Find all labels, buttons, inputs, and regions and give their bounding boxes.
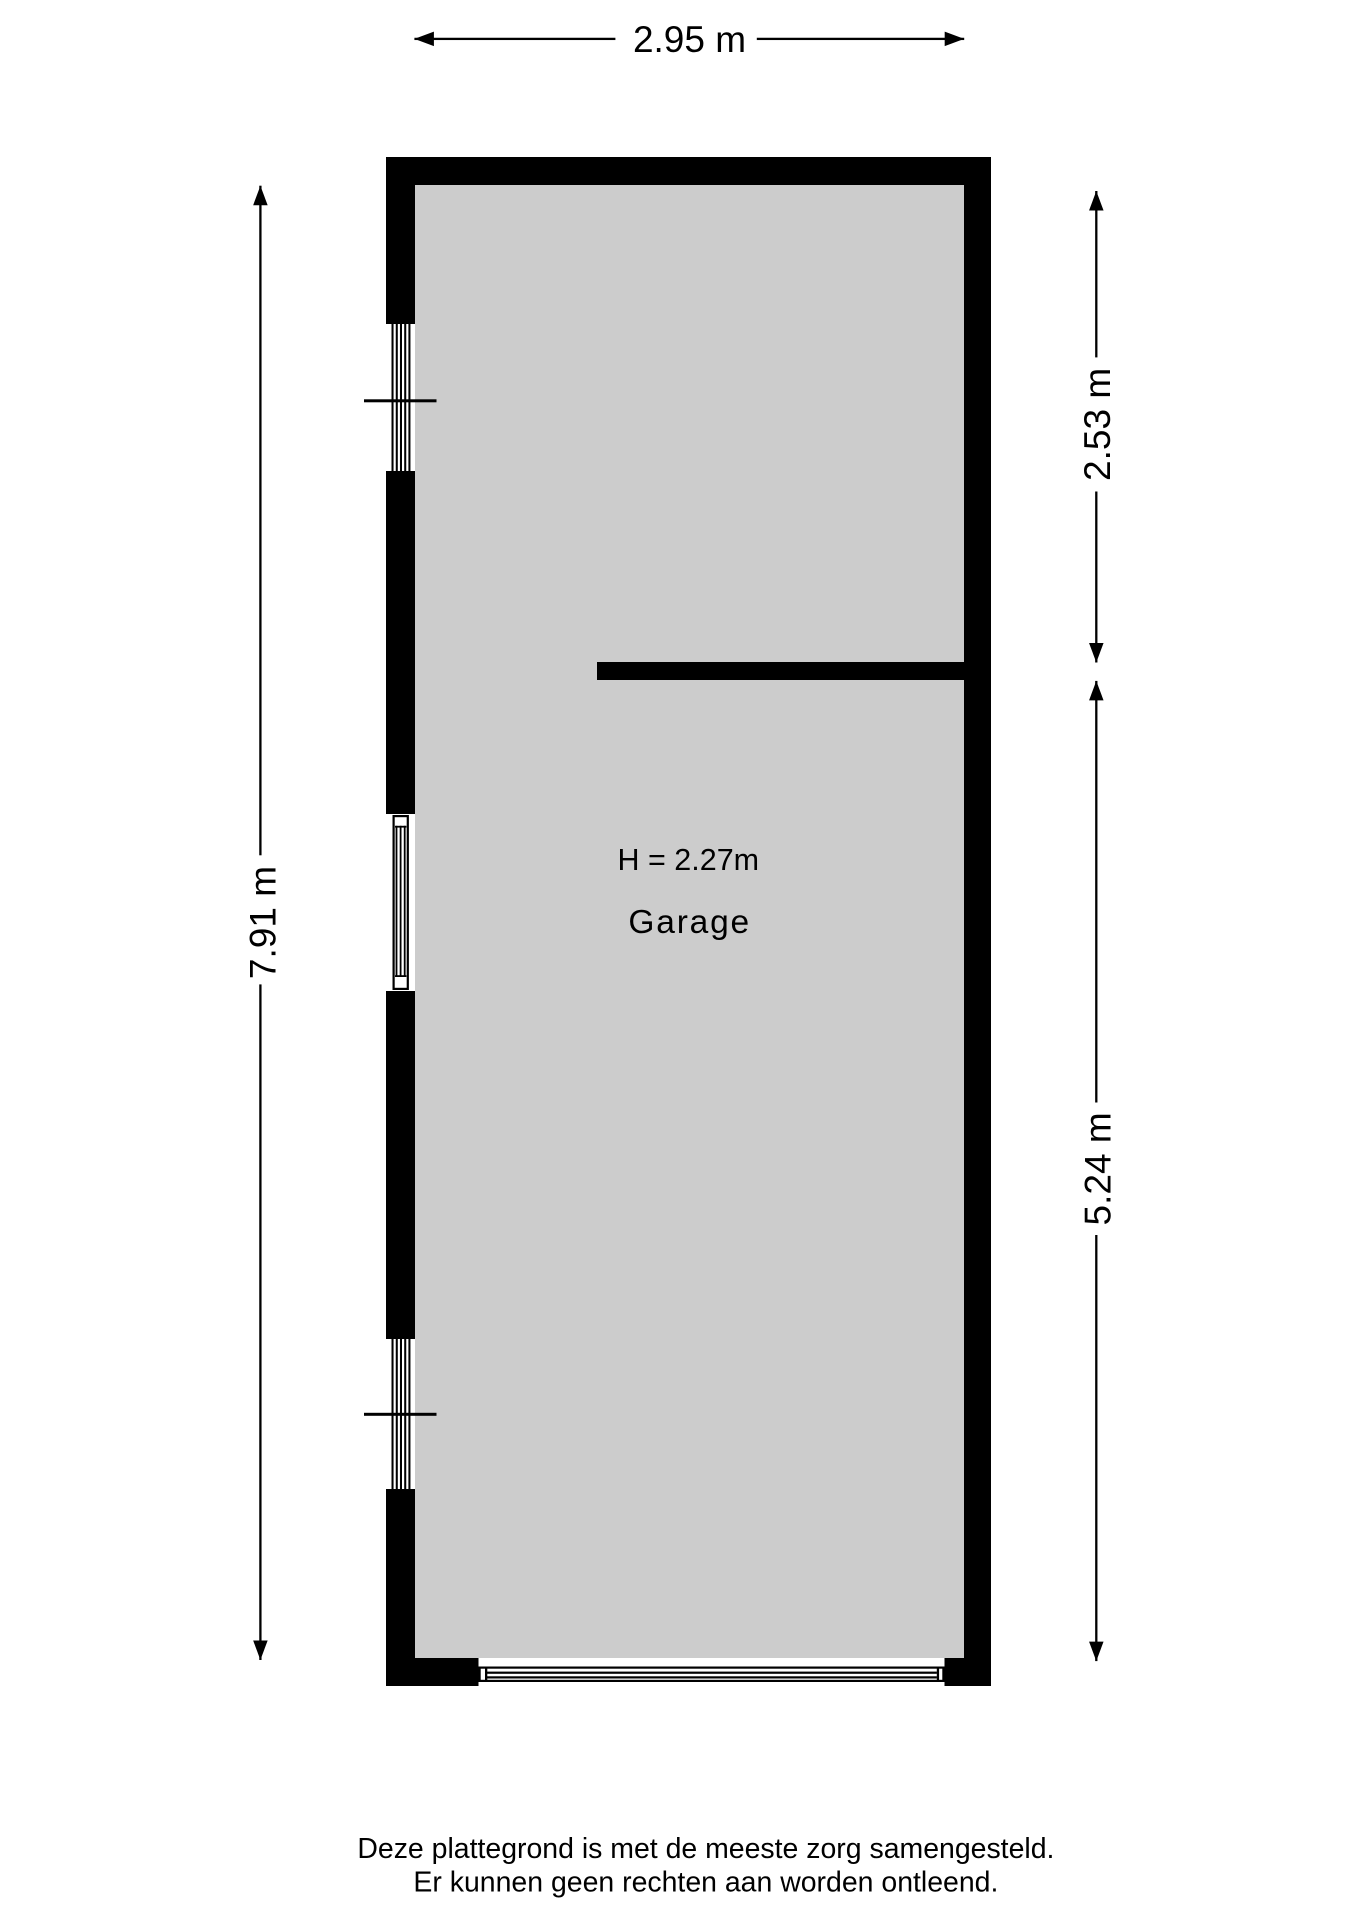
- svg-text:2.95 m: 2.95 m: [633, 19, 746, 60]
- svg-text:Garage: Garage: [628, 904, 751, 941]
- svg-text:2.53 m: 2.53 m: [1077, 368, 1118, 481]
- svg-text:Er kunnen geen rechten aan wor: Er kunnen geen rechten aan worden ontlee…: [413, 1866, 998, 1898]
- svg-text:5.24 m: 5.24 m: [1078, 1112, 1119, 1225]
- svg-text:Deze plattegrond is met de mee: Deze plattegrond is met de meeste zorg s…: [357, 1833, 1054, 1865]
- svg-text:H = 2.27m: H = 2.27m: [618, 843, 760, 877]
- svg-text:7.91 m: 7.91 m: [243, 866, 284, 979]
